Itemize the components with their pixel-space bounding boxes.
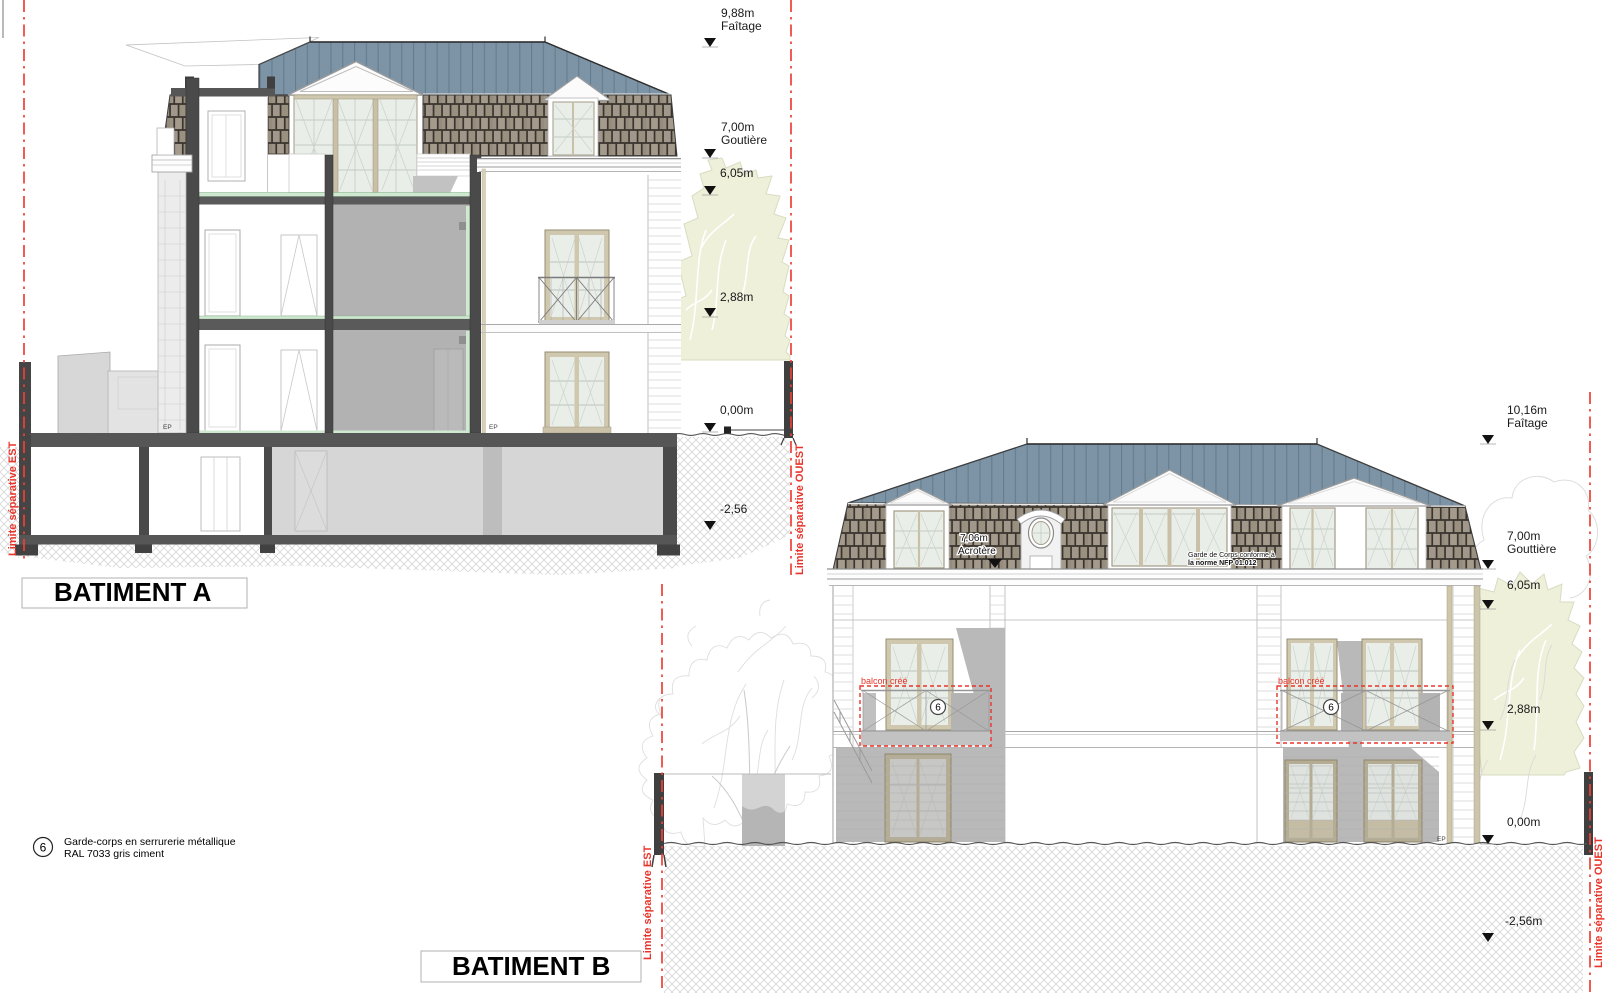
svg-text:EP: EP [1437, 836, 1446, 843]
svg-text:EP: EP [163, 424, 172, 431]
svg-text:0,00m: 0,00m [720, 403, 753, 417]
svg-text:Faîtage: Faîtage [1507, 416, 1548, 430]
svg-text:Faîtage: Faîtage [721, 19, 762, 33]
svg-text:Garde de Corps conforme à: Garde de Corps conforme à [1188, 552, 1275, 559]
svg-text:BATIMENT A: BATIMENT A [54, 577, 212, 607]
svg-text:-2,56m: -2,56m [1505, 914, 1542, 928]
svg-text:la norme NFP 01.012: la norme NFP 01.012 [1188, 560, 1256, 567]
svg-text:10,16m: 10,16m [1507, 403, 1547, 417]
svg-text:7,00m: 7,00m [721, 120, 754, 134]
svg-text:-2,56: -2,56 [720, 502, 748, 516]
svg-text:Goutière: Goutière [721, 133, 767, 147]
svg-text:0,00m: 0,00m [1507, 815, 1540, 829]
svg-text:Limite séparative OUEST: Limite séparative OUEST [794, 444, 806, 575]
svg-text:balcon créé: balcon créé [1278, 676, 1325, 686]
svg-text:BATIMENT B: BATIMENT B [452, 951, 610, 981]
svg-text:RAL 7033 gris ciment: RAL 7033 gris ciment [64, 848, 164, 860]
svg-text:Gouttière: Gouttière [1507, 542, 1557, 556]
svg-text:Acrotère: Acrotère [958, 546, 996, 557]
svg-text:Limite séparative EST: Limite séparative EST [7, 441, 19, 556]
svg-text:7,00m: 7,00m [1507, 529, 1540, 543]
svg-text:Limite séparative OUEST: Limite séparative OUEST [1593, 837, 1605, 968]
svg-text:6: 6 [935, 703, 941, 714]
svg-text:EP: EP [489, 424, 498, 431]
svg-text:Garde-corps en serrurerie méta: Garde-corps en serrurerie métallique [64, 836, 236, 848]
svg-text:2,88m: 2,88m [720, 290, 753, 304]
svg-text:6: 6 [40, 841, 47, 855]
svg-text:balcon créé: balcon créé [861, 676, 908, 686]
svg-text:6,05m: 6,05m [720, 166, 753, 180]
svg-text:6,05m: 6,05m [1507, 578, 1540, 592]
svg-text:Limite séparative EST: Limite séparative EST [642, 845, 654, 960]
svg-text:2,88m: 2,88m [1507, 702, 1540, 716]
svg-text:6: 6 [1328, 703, 1334, 714]
svg-text:7,06m: 7,06m [960, 533, 988, 544]
svg-text:9,88m: 9,88m [721, 6, 754, 20]
